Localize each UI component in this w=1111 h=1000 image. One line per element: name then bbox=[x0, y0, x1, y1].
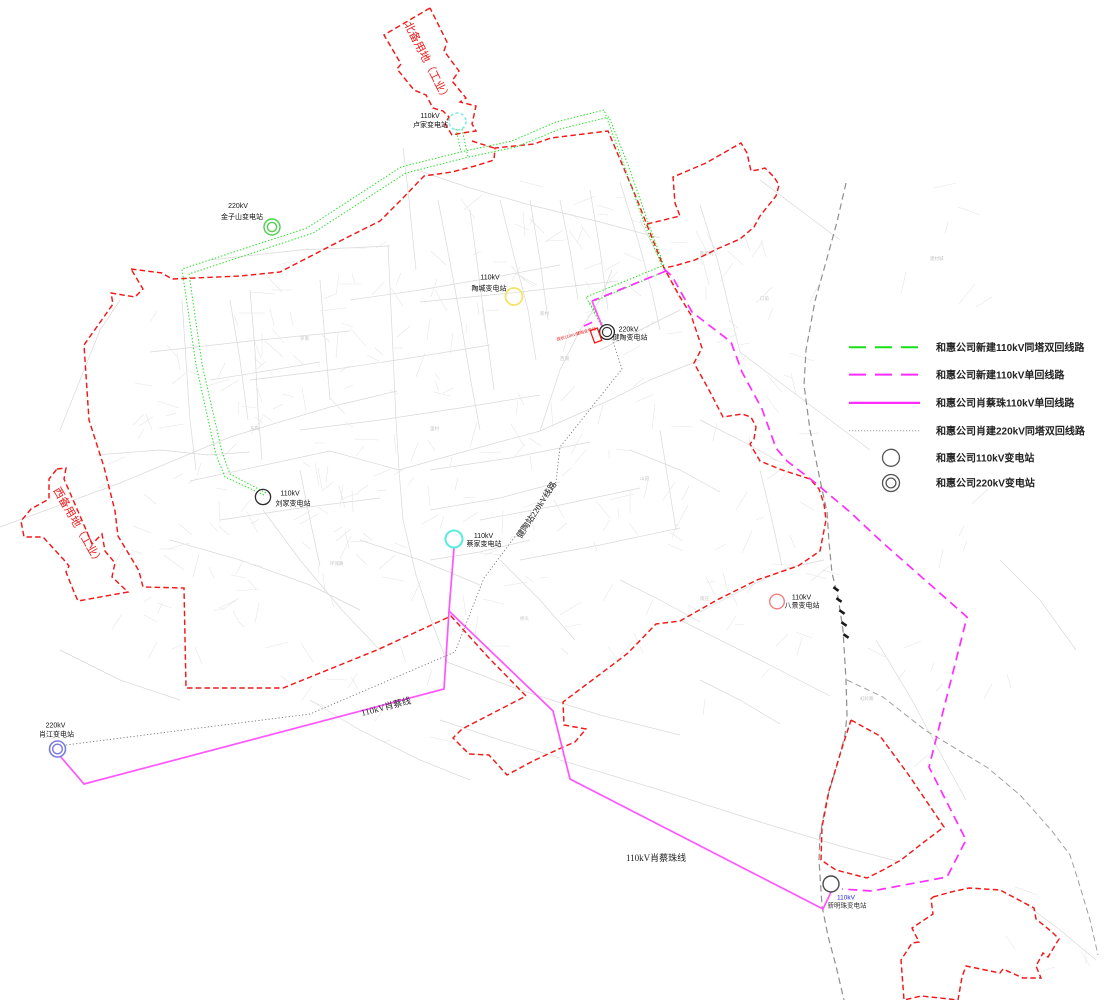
svg-text:八景变电站: 八景变电站 bbox=[785, 601, 820, 610]
svg-text:新明珠变电站: 新明珠变电站 bbox=[828, 901, 868, 910]
svg-text:虹岭路: 虹岭路 bbox=[860, 695, 874, 702]
svg-text:南庄: 南庄 bbox=[700, 595, 709, 602]
svg-text:健陶变电站: 健陶变电站 bbox=[613, 333, 648, 342]
svg-text:220kV: 220kV bbox=[228, 203, 248, 210]
svg-text:110kV: 110kV bbox=[420, 113, 440, 120]
svg-text:蔡家变电站: 蔡家变电站 bbox=[467, 539, 502, 548]
svg-text:110kV: 110kV bbox=[474, 533, 494, 540]
svg-text:金子山变电站: 金子山变电站 bbox=[221, 212, 263, 221]
svg-text:口前: 口前 bbox=[760, 295, 769, 302]
svg-text:110kV: 110kV bbox=[792, 595, 812, 602]
svg-text:陶城变电站: 陶城变电站 bbox=[472, 284, 507, 293]
svg-text:和惠公司肖蔡珠110kV单回线路: 和惠公司肖蔡珠110kV单回线路 bbox=[935, 397, 1075, 410]
svg-text:罗南: 罗南 bbox=[300, 335, 309, 342]
svg-text:里村: 里村 bbox=[430, 425, 439, 431]
svg-text:和惠公司110kV变电站: 和惠公司110kV变电站 bbox=[935, 452, 1034, 465]
svg-text:和惠公司220kV变电站: 和惠公司220kV变电站 bbox=[935, 477, 1035, 490]
svg-text:110kV肖蔡珠线: 110kV肖蔡珠线 bbox=[626, 852, 686, 863]
svg-text:和惠公司新建110kV同塔双回线路: 和惠公司新建110kV同塔双回线路 bbox=[935, 341, 1085, 354]
svg-text:110kV: 110kV bbox=[280, 491, 300, 498]
svg-text:220kV: 220kV bbox=[619, 327, 639, 334]
svg-text:和惠公司新建110kV单回线路: 和惠公司新建110kV单回线路 bbox=[935, 368, 1065, 381]
svg-text:新村: 新村 bbox=[540, 310, 549, 317]
svg-text:山前: 山前 bbox=[640, 475, 649, 482]
svg-text:环城路: 环城路 bbox=[330, 560, 344, 567]
svg-text:110kV: 110kV bbox=[480, 275, 500, 282]
svg-text:东风: 东风 bbox=[250, 425, 259, 432]
svg-text:建材城: 建材城 bbox=[930, 255, 944, 262]
svg-text:卢家变电站: 卢家变电站 bbox=[413, 120, 448, 129]
svg-text:和惠公司肖建220kV同塔双回线路: 和惠公司肖建220kV同塔双回线路 bbox=[935, 425, 1086, 438]
svg-text:肖江变电站: 肖江变电站 bbox=[39, 730, 74, 739]
svg-text:西湖: 西湖 bbox=[560, 355, 569, 362]
svg-text:110kV: 110kV bbox=[837, 895, 856, 902]
svg-text:220kV: 220kV bbox=[46, 723, 66, 730]
svg-text:刘家变电站: 刘家变电站 bbox=[276, 499, 311, 508]
svg-text:桥头: 桥头 bbox=[520, 615, 529, 622]
